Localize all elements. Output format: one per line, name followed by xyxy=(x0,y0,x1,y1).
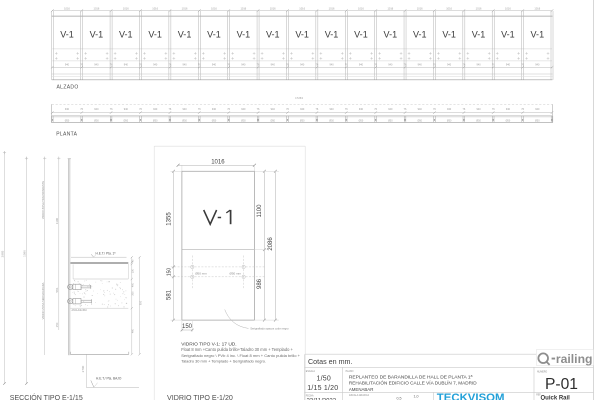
svg-text:V-1: V-1 xyxy=(325,30,339,40)
svg-text:1016: 1016 xyxy=(64,6,70,10)
svg-text:Ø50: Ø50 xyxy=(270,119,275,122)
svg-text:V-1: V-1 xyxy=(178,30,192,40)
svg-text:940: 940 xyxy=(94,63,99,66)
svg-text:V-1: V-1 xyxy=(442,30,456,40)
svg-text:Ø50: Ø50 xyxy=(535,119,540,122)
svg-text:940: 940 xyxy=(388,63,393,66)
svg-text:76: 76 xyxy=(257,108,260,111)
svg-text:150: 150 xyxy=(182,324,193,330)
svg-text:V-1: V-1 xyxy=(295,30,309,40)
svg-text:300: 300 xyxy=(132,291,135,296)
svg-text:Ø50: Ø50 xyxy=(94,119,99,122)
svg-text:76: 76 xyxy=(374,108,377,111)
svg-text:PLANTA: PLANTA xyxy=(56,131,77,137)
svg-text:1/15 1/20: 1/15 1/20 xyxy=(307,385,338,392)
svg-text:ESCALA GRAFICA: ESCALA GRAFICA xyxy=(349,394,369,397)
svg-text:Ø50: Ø50 xyxy=(388,119,393,122)
svg-text:VIDRIO ZONA TRANSPARENTE: VIDRIO ZONA TRANSPARENTE xyxy=(41,181,45,220)
svg-text:940: 940 xyxy=(447,63,452,66)
svg-text:1,0: 1,0 xyxy=(414,394,419,398)
svg-text:Ø50 mm: Ø50 mm xyxy=(195,271,207,275)
svg-text:76: 76 xyxy=(139,108,142,111)
svg-text:1016: 1016 xyxy=(123,6,129,10)
svg-text:76: 76 xyxy=(286,108,289,111)
svg-text:1016: 1016 xyxy=(534,6,540,10)
svg-text:76: 76 xyxy=(433,63,436,66)
svg-text:76: 76 xyxy=(227,63,230,66)
svg-text:V-1: V-1 xyxy=(237,30,251,40)
svg-text:1016: 1016 xyxy=(505,6,511,10)
svg-text:V-1: V-1 xyxy=(472,30,486,40)
svg-text:940: 940 xyxy=(182,108,187,111)
svg-text:Ø50: Ø50 xyxy=(153,119,158,122)
svg-text:NUMERO: NUMERO xyxy=(537,372,547,374)
svg-text:1100: 1100 xyxy=(257,204,263,218)
svg-text:Taladro 30 mm + Templado + Ser: Taladro 30 mm + Templado + Serigrafiado … xyxy=(181,359,266,364)
svg-text:SECCIÓN TIPO E-1/15: SECCIÓN TIPO E-1/15 xyxy=(10,393,83,400)
svg-text:1016: 1016 xyxy=(358,6,364,10)
svg-text:76: 76 xyxy=(315,108,318,111)
svg-text:Ø50: Ø50 xyxy=(124,119,129,122)
svg-text:76: 76 xyxy=(462,108,465,111)
svg-text:V-1: V-1 xyxy=(413,30,427,40)
svg-text:940: 940 xyxy=(329,108,334,111)
svg-text:76: 76 xyxy=(198,63,201,66)
svg-text:76: 76 xyxy=(315,63,318,66)
svg-text:76: 76 xyxy=(80,108,83,111)
svg-text:76: 76 xyxy=(286,63,289,66)
svg-text:940: 940 xyxy=(476,63,481,66)
svg-text:940: 940 xyxy=(65,63,70,66)
svg-text:940: 940 xyxy=(153,108,158,111)
svg-text:2086: 2086 xyxy=(268,237,274,251)
svg-text:940: 940 xyxy=(418,63,423,66)
svg-text:V-1: V-1 xyxy=(384,30,398,40)
svg-text:Cotas en mm.: Cotas en mm. xyxy=(308,358,352,366)
svg-text:150: 150 xyxy=(166,268,172,277)
svg-text:940: 940 xyxy=(447,108,452,111)
svg-text:460: 460 xyxy=(132,328,135,333)
svg-text:Ø50: Ø50 xyxy=(182,119,187,122)
svg-text:76: 76 xyxy=(345,108,348,111)
svg-text:940: 940 xyxy=(535,63,540,66)
svg-text:Ø50: Ø50 xyxy=(329,119,334,122)
svg-text:940: 940 xyxy=(212,63,217,66)
svg-text:940: 940 xyxy=(388,108,393,111)
svg-text:Ø50: Ø50 xyxy=(212,119,217,122)
svg-text:76: 76 xyxy=(492,108,495,111)
svg-text:Serigrafiado opacos color negr: Serigrafiado opacos color negro xyxy=(250,327,289,331)
svg-text:ALZADO: ALZADO xyxy=(57,84,79,90)
svg-text:V-1: V-1 xyxy=(266,30,280,40)
svg-text:VIDRIO ZONA SERIGRAFIADA: VIDRIO ZONA SERIGRAFIADA xyxy=(41,282,45,319)
svg-text:1016: 1016 xyxy=(446,6,452,10)
svg-text:P-01: P-01 xyxy=(545,376,578,393)
svg-text:Ø50: Ø50 xyxy=(417,119,422,122)
svg-text:VIDRIO TIPO E-1/20: VIDRIO TIPO E-1/20 xyxy=(167,394,233,400)
svg-text:1016: 1016 xyxy=(94,6,100,10)
svg-text:Ø50: Ø50 xyxy=(300,119,305,122)
svg-text:1016: 1016 xyxy=(476,6,482,10)
svg-text:1355: 1355 xyxy=(166,212,172,226)
svg-text:76: 76 xyxy=(521,108,524,111)
svg-text:76: 76 xyxy=(168,108,171,111)
svg-text:Ø50 mm: Ø50 mm xyxy=(230,271,242,275)
svg-text:1016: 1016 xyxy=(270,6,276,10)
svg-text:V-1: V-1 xyxy=(148,30,162,40)
svg-text:986: 986 xyxy=(257,278,263,289)
svg-text:940: 940 xyxy=(271,63,276,66)
svg-text:940: 940 xyxy=(182,63,187,66)
svg-text:V-1: V-1 xyxy=(119,30,133,40)
svg-text:Ø50: Ø50 xyxy=(476,119,481,122)
svg-text:2985: 2985 xyxy=(1,250,5,257)
svg-text:1016: 1016 xyxy=(182,6,188,10)
svg-text:940: 940 xyxy=(65,108,70,111)
svg-text:150: 150 xyxy=(132,268,135,273)
svg-text:940: 940 xyxy=(153,63,158,66)
svg-text:1016: 1016 xyxy=(299,6,305,10)
svg-text:76: 76 xyxy=(345,63,348,66)
svg-text:940: 940 xyxy=(535,108,540,111)
svg-text:76: 76 xyxy=(257,63,260,66)
svg-text:Ø50: Ø50 xyxy=(241,119,246,122)
svg-text:V-1: V-1 xyxy=(90,30,104,40)
svg-text:940: 940 xyxy=(329,63,334,66)
svg-text:Ø50: Ø50 xyxy=(65,119,70,122)
svg-text:400: 400 xyxy=(132,282,135,287)
svg-text:REPLANTEO DE BARANDILLA DE HA: REPLANTEO DE BARANDILLA DE HALL DE PLANT… xyxy=(349,374,473,380)
svg-text:76: 76 xyxy=(168,63,171,66)
svg-text:940: 940 xyxy=(359,108,364,111)
svg-text:TECKVISOM: TECKVISOM xyxy=(437,392,505,400)
svg-text:940: 940 xyxy=(124,108,129,111)
svg-text:V-1: V-1 xyxy=(501,30,515,40)
svg-text:940: 940 xyxy=(300,63,305,66)
svg-text:Quick Rail: Quick Rail xyxy=(541,395,571,400)
svg-text:76: 76 xyxy=(521,63,524,66)
svg-text:V-1: V-1 xyxy=(207,30,221,40)
svg-text:940: 940 xyxy=(300,108,305,111)
svg-text:940: 940 xyxy=(241,108,246,111)
svg-text:940: 940 xyxy=(476,108,481,111)
svg-text:2700: 2700 xyxy=(81,365,85,372)
svg-text:Ø50: Ø50 xyxy=(447,119,452,122)
svg-text:PLANO: PLANO xyxy=(346,370,354,373)
svg-text:940: 940 xyxy=(506,63,511,66)
svg-text:1016: 1016 xyxy=(211,6,217,10)
svg-text:581: 581 xyxy=(55,287,59,292)
svg-text:76: 76 xyxy=(433,108,436,111)
svg-text:Serigrafiado negro \ PVb 4 inc: Serigrafiado negro \ PVb 4 inc. \ Float … xyxy=(181,353,300,358)
svg-text:1096: 1096 xyxy=(23,250,27,257)
svg-text:H.E.T./ Pta. 1ª: H.E.T./ Pta. 1ª xyxy=(96,252,117,256)
svg-text:1/50: 1/50 xyxy=(317,375,331,382)
svg-text:940: 940 xyxy=(418,108,423,111)
svg-text:Ø50: Ø50 xyxy=(359,119,364,122)
svg-text:1016: 1016 xyxy=(417,6,423,10)
svg-text:940: 940 xyxy=(271,108,276,111)
svg-text:76: 76 xyxy=(404,63,407,66)
svg-text:940: 940 xyxy=(94,108,99,111)
svg-text:1100: 1100 xyxy=(55,217,59,224)
svg-text:railing: railing xyxy=(556,352,593,366)
svg-text:FECHA: FECHA xyxy=(306,394,314,397)
svg-text:V-1: V-1 xyxy=(60,30,74,40)
svg-text:76: 76 xyxy=(110,63,113,66)
svg-text:76: 76 xyxy=(404,108,407,111)
svg-text:V-1: V-1 xyxy=(531,30,545,40)
svg-text:581: 581 xyxy=(166,289,172,300)
svg-text:1016: 1016 xyxy=(152,6,158,10)
svg-text:76: 76 xyxy=(462,63,465,66)
svg-text:76: 76 xyxy=(492,63,495,66)
svg-text:950: 950 xyxy=(139,300,142,305)
svg-text:V-1: V-1 xyxy=(354,30,368,40)
svg-text:940: 940 xyxy=(124,63,129,66)
svg-text:76: 76 xyxy=(110,108,113,111)
svg-text:1016: 1016 xyxy=(211,160,225,166)
svg-text:940: 940 xyxy=(212,108,217,111)
svg-text:Float 8 mm +Canto pulida brill: Float 8 mm +Canto pulida brillo+Taladro … xyxy=(181,347,293,352)
svg-text:76: 76 xyxy=(139,63,142,66)
svg-text:17263: 17263 xyxy=(295,96,303,100)
svg-text:76: 76 xyxy=(374,63,377,66)
svg-text:1016: 1016 xyxy=(329,6,335,10)
svg-text:ANCLAJE Ø10: ANCLAJE Ø10 xyxy=(72,309,88,312)
svg-text:REHABILITACIÓN EDIFICIO CALLE: REHABILITACIÓN EDIFICIO CALLE VÍA DUBLÍN… xyxy=(349,380,477,386)
svg-text:76: 76 xyxy=(227,108,230,111)
svg-text:150: 150 xyxy=(55,322,59,327)
svg-text:ESCALA: ESCALA xyxy=(306,370,316,373)
svg-text:AMENABAR: AMENABAR xyxy=(349,387,373,392)
svg-text:76: 76 xyxy=(80,63,83,66)
svg-text:1016: 1016 xyxy=(240,6,246,10)
svg-text:940: 940 xyxy=(506,108,511,111)
svg-text:H.E.T./ Pta. BAJO: H.E.T./ Pta. BAJO xyxy=(96,376,122,380)
svg-text:940: 940 xyxy=(241,63,246,66)
svg-text:0,5: 0,5 xyxy=(397,396,402,400)
svg-text:940: 940 xyxy=(359,63,364,66)
svg-text:76: 76 xyxy=(198,108,201,111)
svg-text:1016: 1016 xyxy=(387,6,393,10)
svg-text:Ø50: Ø50 xyxy=(506,119,511,122)
